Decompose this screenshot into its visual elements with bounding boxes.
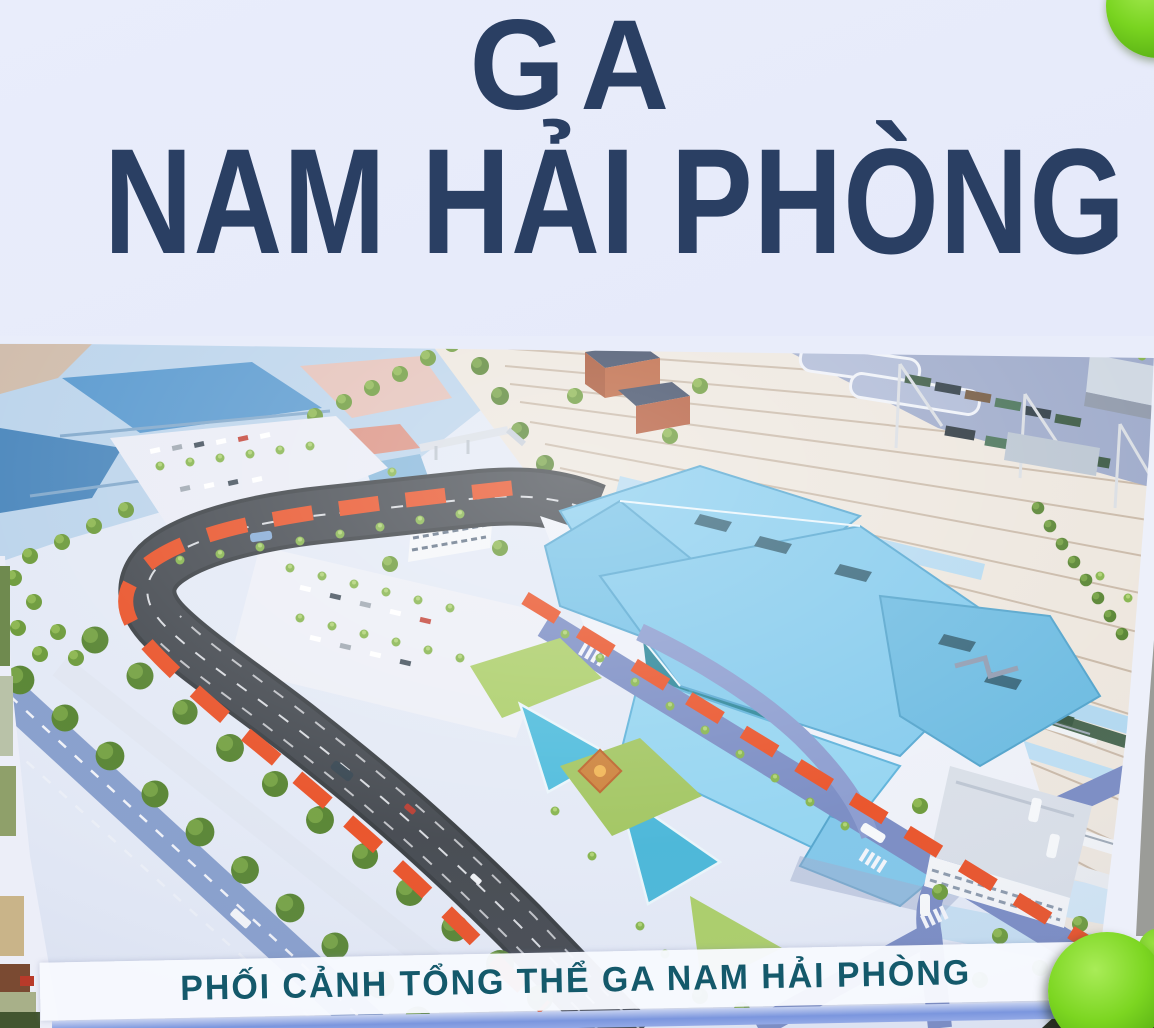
station-aerial-rendering: [0, 336, 1154, 1028]
poster-title: GA NAM HẢI PHÒNG: [0, 0, 1154, 336]
caption-text: PHỐI CẢNH TỔNG THỂ GA NAM HẢI PHÒNG: [180, 953, 972, 1009]
poster-title-line2: NAM HẢI PHÒNG: [104, 126, 1050, 276]
photo-light-wash: [0, 336, 1154, 1028]
poster-title-line1: GA: [23, 2, 1131, 130]
poster-photo: GA NAM HẢI PHÒNG: [0, 0, 1154, 1028]
